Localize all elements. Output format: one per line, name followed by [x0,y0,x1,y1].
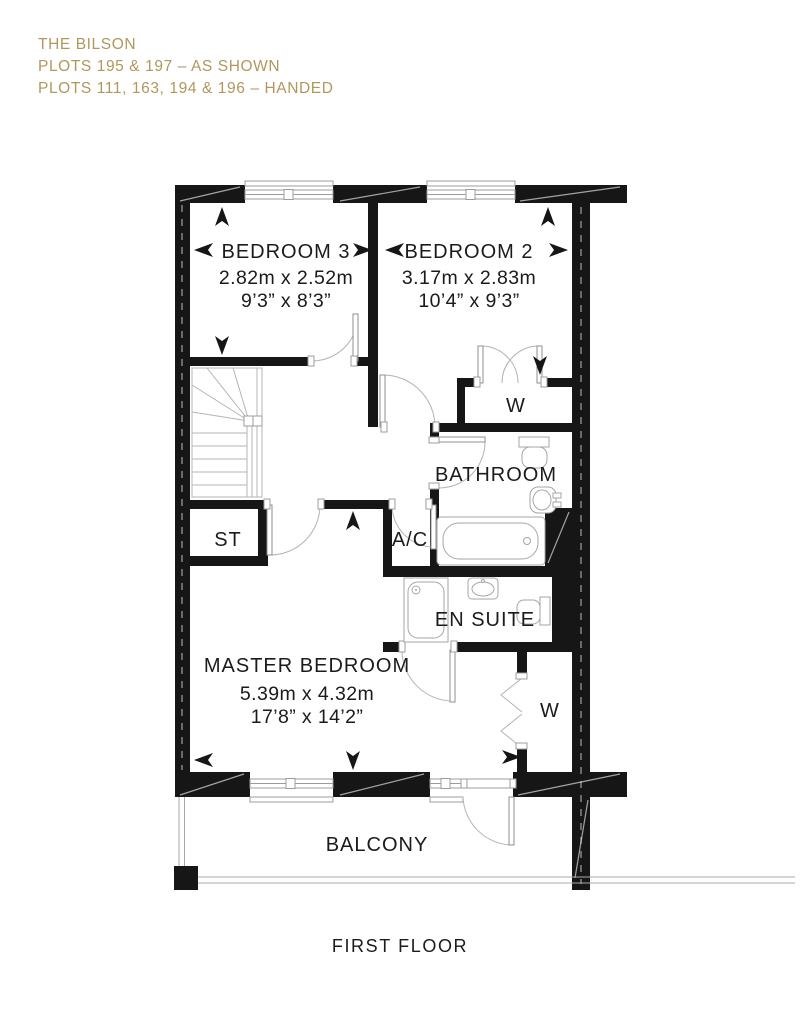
ensuite-sink-icon [468,578,498,599]
bathtub-icon [437,517,545,565]
bifold-doors-icon [501,678,522,748]
plots-handed: PLOTS 111, 163, 194 & 196 – HANDED [38,80,334,97]
header: THE BILSON PLOTS 195 & 197 – AS SHOWN PL… [38,36,334,97]
floorplan-drawing: THE BILSON PLOTS 195 & 197 – AS SHOWN PL… [0,0,800,1036]
balcony-outline [174,797,795,890]
stairs-icon [192,368,262,497]
wardrobe-doors-icon [478,346,542,383]
plan-title: THE BILSON [38,36,136,53]
bedroom3-label: BEDROOM 3 [221,241,350,263]
bedroom3-dim-metric: 2.82m x 2.52m [219,267,353,289]
wardrobe-bedroom2-label: W [506,395,526,417]
store-label: ST [214,529,242,551]
bedroom2-dim-imperial: 10’4” x 9’3” [418,290,519,312]
master-dim-metric: 5.39m x 4.32m [240,683,374,705]
master-dim-imperial: 17’8” x 14’2” [251,706,364,728]
bedroom2-label: BEDROOM 2 [404,241,533,263]
master-bedroom-label: MASTER BEDROOM [204,655,410,677]
floorplan-page: THE BILSON PLOTS 195 & 197 – AS SHOWN PL… [0,0,800,1036]
balcony-label: BALCONY [326,834,429,856]
floor-caption: FIRST FLOOR [332,936,468,956]
airing-cupboard-label: A/C [392,529,428,551]
bathroom-label: BATHROOM [435,464,557,486]
bedroom3-dim-imperial: 9’3” x 8’3” [241,290,331,312]
bedroom2-dim-metric: 3.17m x 2.83m [402,267,536,289]
ensuite-label: EN SUITE [435,609,535,631]
wardrobe-master-label: W [540,700,560,722]
plots-as-shown: PLOTS 195 & 197 – AS SHOWN [38,58,280,75]
